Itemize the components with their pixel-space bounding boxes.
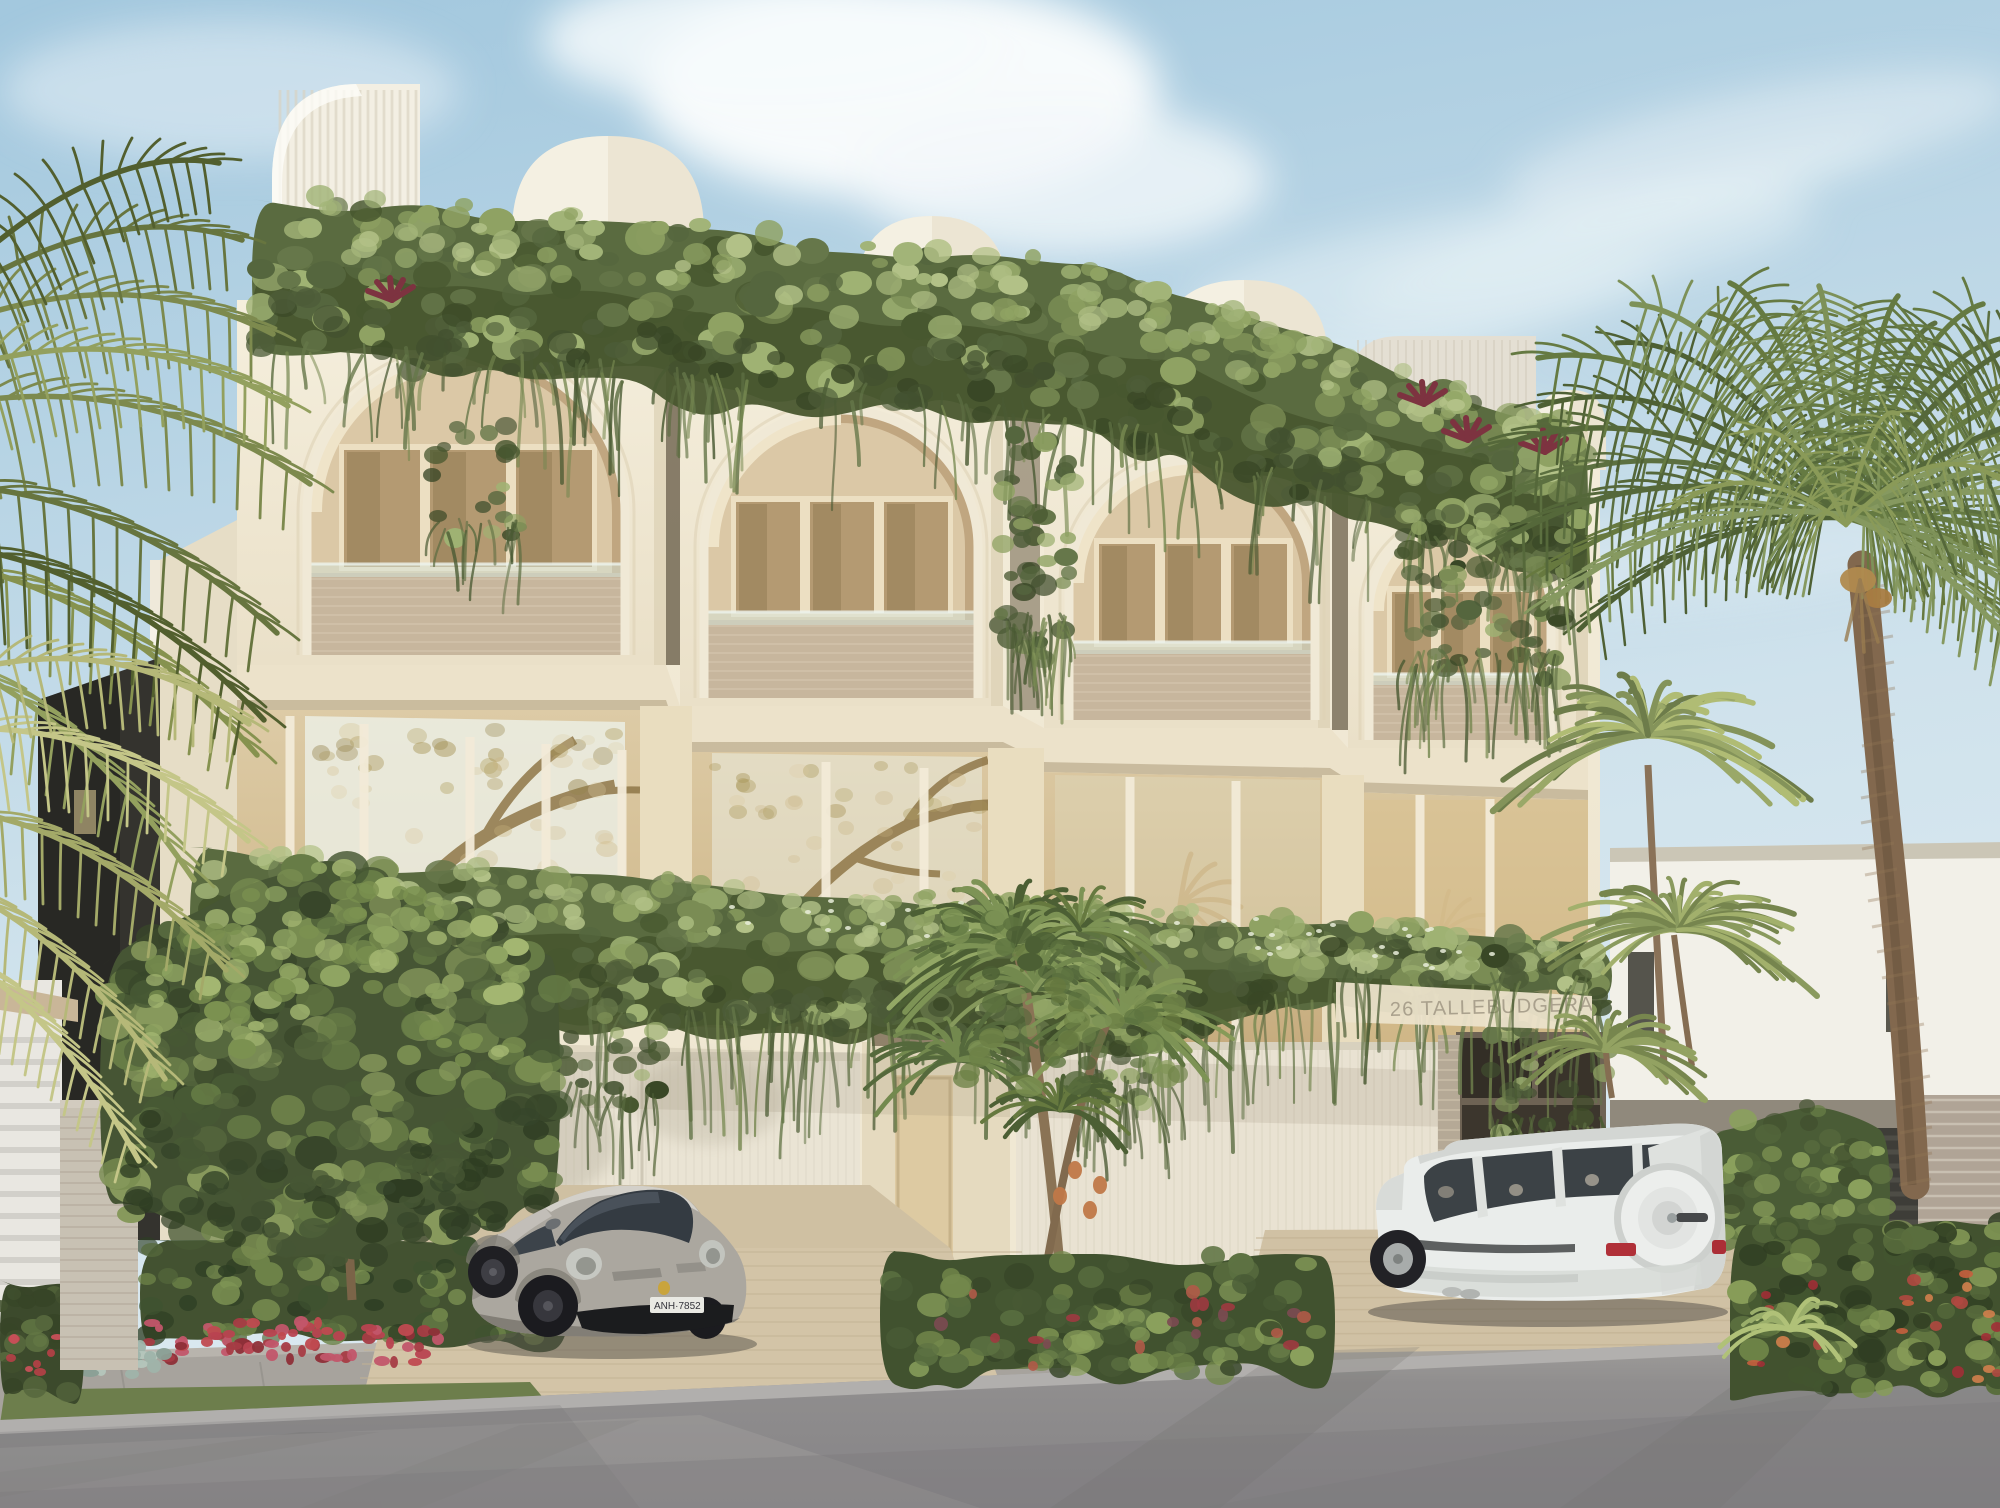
- svg-text:ANH·7852: ANH·7852: [654, 1301, 701, 1312]
